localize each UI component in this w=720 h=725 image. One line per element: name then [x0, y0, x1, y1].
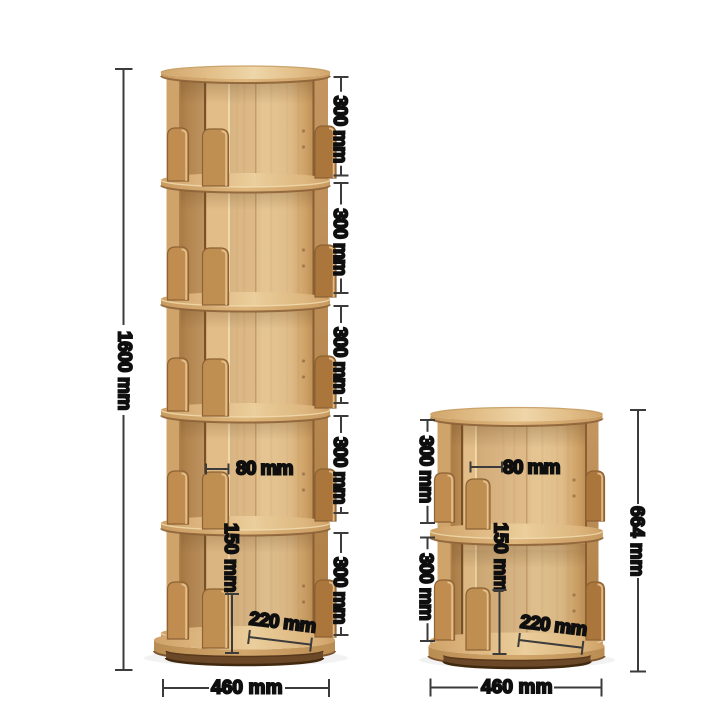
svg-text:300 mm: 300 mm: [329, 209, 350, 276]
svg-text:300 mm: 300 mm: [329, 96, 350, 163]
svg-text:300 mm: 300 mm: [415, 436, 436, 503]
svg-text:300 mm: 300 mm: [415, 553, 436, 620]
svg-text:150 mm: 150 mm: [220, 523, 241, 592]
svg-text:460 mm: 460 mm: [211, 678, 282, 699]
svg-text:460 mm: 460 mm: [481, 677, 552, 698]
svg-text:664 mm: 664 mm: [626, 506, 647, 576]
svg-text:300 mm: 300 mm: [329, 437, 350, 504]
svg-text:1600 mm: 1600 mm: [114, 331, 135, 410]
svg-text:300 mm: 300 mm: [329, 327, 350, 394]
svg-text:80 mm: 80 mm: [236, 459, 293, 480]
svg-text:150 mm: 150 mm: [490, 523, 511, 592]
svg-text:300 mm: 300 mm: [329, 557, 350, 624]
svg-text:80 mm: 80 mm: [503, 458, 560, 479]
